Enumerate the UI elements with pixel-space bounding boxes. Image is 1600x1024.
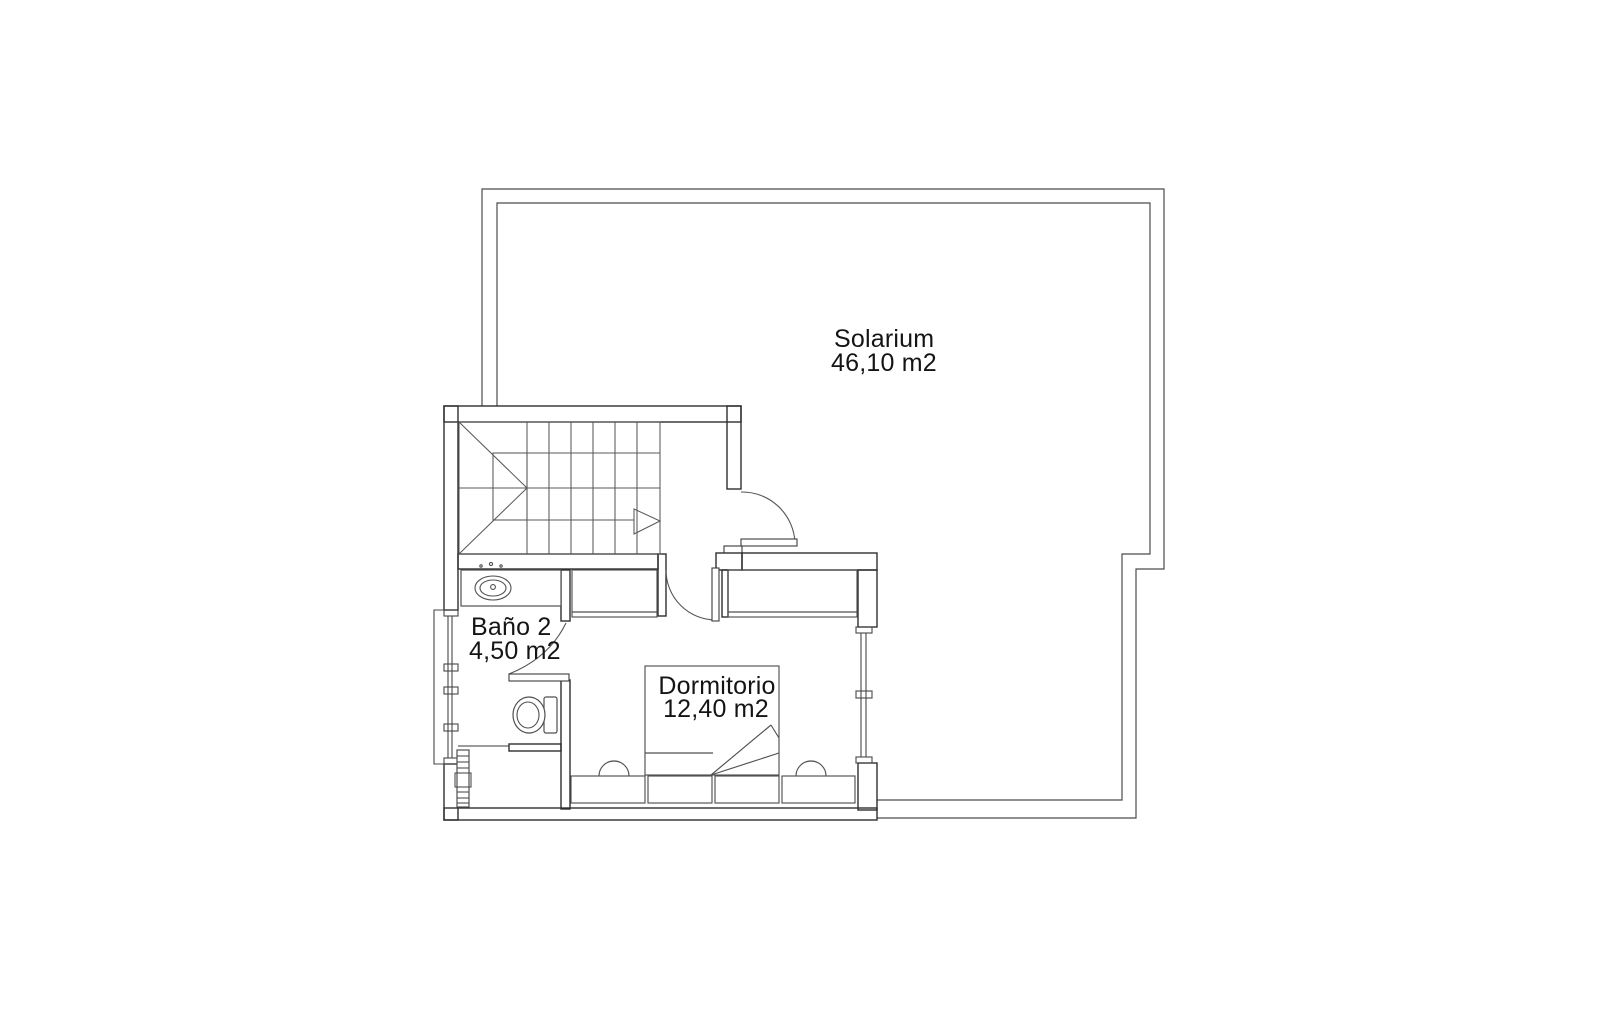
- wall-stair-top: [444, 406, 741, 422]
- bedroom-window-right: [856, 627, 872, 763]
- faucet-handle: [480, 565, 482, 567]
- bedside-lamp-left: [599, 761, 629, 776]
- bed-fold-line: [771, 725, 779, 738]
- wall-bedroom-right-lower: [858, 763, 877, 810]
- solarium-area: 46,10 m2: [831, 349, 937, 377]
- bedroom-door-swing-arc: [666, 570, 716, 620]
- bedroom-door: [666, 568, 719, 621]
- solarium-door-swing-arc: [741, 492, 795, 543]
- bathroom-door-leaf: [509, 674, 569, 681]
- wall-step-detail: [724, 546, 742, 553]
- towel-radiator: [455, 750, 471, 807]
- headboard-segment: [715, 776, 779, 803]
- solarium-door-leaf: [741, 539, 797, 546]
- room-label-solarium: Solarium 46,10 m2: [831, 325, 937, 377]
- bedroom-door-leaf: [712, 568, 719, 621]
- wall-bedroom-door-jamb: [658, 554, 666, 616]
- wall-closet2-stub: [722, 570, 728, 617]
- room-label-bano2: Baño 2 4,50 m2: [469, 613, 561, 665]
- closet-left: [572, 570, 657, 617]
- closet-right: [728, 570, 857, 617]
- window-cap: [856, 757, 872, 763]
- bano2-area: 4,50 m2: [469, 637, 561, 665]
- room-labels: Solarium 46,10 m2 Baño 2 4,50 m2 Dormito…: [469, 325, 937, 723]
- faucet-spout: [489, 562, 492, 565]
- headboard-row: [571, 761, 855, 803]
- closet-outline: [728, 570, 857, 617]
- bathroom-window-left: [434, 610, 458, 764]
- wall-laundry-stub: [509, 744, 561, 751]
- closet-outline: [572, 570, 657, 617]
- solarium-door: [741, 492, 797, 546]
- window-cap: [444, 610, 458, 616]
- floor-plan-drawing: Solarium 46,10 m2 Baño 2 4,50 m2 Dormito…: [0, 0, 1600, 1024]
- window-cap: [856, 627, 872, 633]
- parapet-inner-line: [497, 203, 1150, 800]
- wall-left-upper: [444, 406, 458, 610]
- wall-bedroom-right-upper: [858, 570, 877, 627]
- stair-newel-box: [493, 453, 527, 520]
- wall-left-lower: [444, 764, 458, 820]
- window-cap: [444, 687, 458, 694]
- window-outer-sill: [434, 610, 444, 764]
- window-cap: [856, 691, 872, 698]
- wall-bath-divider-upper: [561, 570, 570, 621]
- toilet: [513, 697, 557, 733]
- wall-bottom: [444, 808, 877, 820]
- bedside-lamp-right: [796, 761, 826, 776]
- window-cap: [444, 724, 458, 731]
- bed-fold-line: [711, 725, 771, 775]
- staircase: [459, 422, 660, 554]
- dormitorio-area: 12,40 m2: [663, 695, 769, 723]
- wall-between-doors: [716, 553, 742, 570]
- toilet-tank: [544, 697, 557, 733]
- bathroom-fixtures: [455, 562, 561, 807]
- solarium-parapet: [482, 189, 1164, 818]
- bed-fold-line: [711, 753, 779, 775]
- wall-bedroom-top: [742, 553, 877, 570]
- wall-stair-right: [727, 406, 741, 489]
- floor-plan-page: Solarium 46,10 m2 Baño 2 4,50 m2 Dormito…: [0, 0, 1600, 1024]
- headboard-segment: [648, 776, 712, 803]
- stair-direction-arrow: [634, 509, 660, 534]
- wall-under-stairs: [458, 554, 658, 569]
- window-cap: [444, 664, 458, 671]
- bedside-table-left: [571, 776, 645, 803]
- parapet-outer-line: [482, 189, 1164, 818]
- window-cap: [444, 758, 458, 764]
- wall-bath-divider-lower: [561, 680, 570, 809]
- room-label-dormitorio: Dormitorio 12,40 m2: [658, 672, 775, 723]
- faucet-handle: [500, 565, 502, 567]
- bedside-table-right: [782, 776, 855, 803]
